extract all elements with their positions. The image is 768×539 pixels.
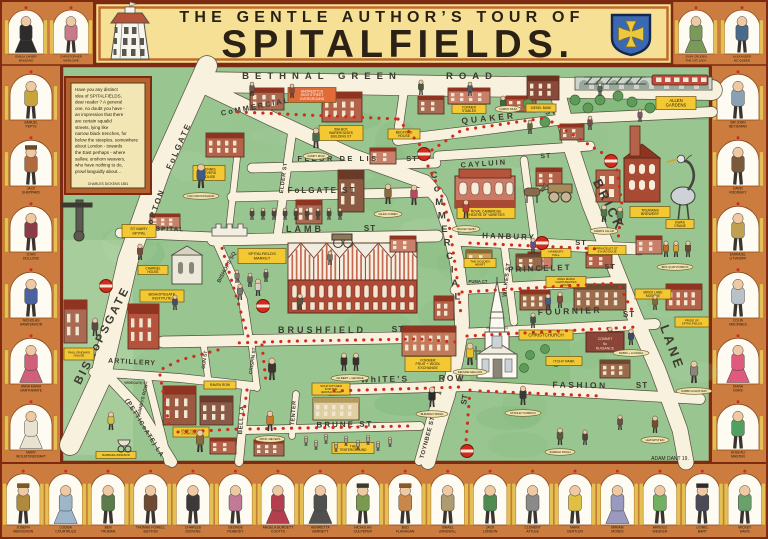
svg-text:MACINNES: MACINNES — [729, 322, 747, 326]
svg-text:GARTHWAITE: GARTHWAITE — [20, 388, 43, 392]
svg-text:FLANAGAN: FLANAGAN — [396, 529, 415, 533]
svg-text:HOUSE: HOUSE — [398, 134, 411, 138]
svg-text:BETHNAL GREEN: BETHNAL GREEN — [242, 71, 402, 82]
svg-text:ST: ST — [459, 394, 470, 406]
svg-text:streets, lying like: streets, lying like — [75, 125, 109, 130]
svg-text:BUILDING ST: BUILDING ST — [331, 135, 352, 139]
svg-text:ST: ST — [575, 238, 587, 247]
svg-text:MC QUEEN: MC QUEEN — [734, 58, 750, 62]
svg-text:RODINSKY: RODINSKY — [729, 190, 747, 194]
svg-text:are certain squalid: are certain squalid — [75, 119, 112, 124]
svg-text:COMMIT: COMMIT — [598, 337, 613, 341]
svg-text:E: E — [441, 224, 447, 235]
svg-text:ST: ST — [392, 324, 405, 334]
svg-text:DELMAR HELLION: DELMAR HELLION — [458, 370, 482, 374]
svg-text:INSTITUTE: INSTITUTE — [152, 296, 172, 300]
svg-text:HANBURY: HANBURY — [482, 231, 536, 242]
svg-text:DORS: DORS — [733, 388, 743, 392]
svg-text:ITCHY PARK: ITCHY PARK — [553, 359, 575, 363]
svg-text:SPITALFIELDS: SPITALFIELDS — [682, 322, 703, 326]
svg-text:Have you any distinct: Have you any distinct — [75, 87, 119, 92]
svg-text:idea of SPITALFIELDS,: idea of SPITALFIELDS, — [75, 93, 122, 98]
svg-text:dear reader ? A general: dear reader ? A general — [75, 100, 122, 105]
svg-text:TENTERGROUND: TENTERGROUND — [340, 448, 368, 452]
svg-text:MARKET: MARKET — [254, 256, 271, 261]
svg-text:LAMB: LAMB — [286, 224, 324, 234]
svg-text:PUMA CT: PUMA CT — [469, 279, 488, 284]
svg-text:No: No — [603, 342, 607, 346]
svg-text:ST: ST — [604, 262, 616, 271]
svg-text:RABBI GOLDSTEIN: RABBI GOLDSTEIN — [681, 389, 706, 393]
svg-text:MERCERON: MERCERON — [13, 529, 33, 533]
svg-text:WOLSTONECRAFT: WOLSTONECRAFT — [16, 454, 46, 458]
svg-text:ADAM DANT 19.: ADAM DANT 19. — [651, 456, 689, 462]
svg-text:SPITAL: SPITAL — [156, 226, 185, 233]
svg-text:DICKENS: DICKENS — [185, 529, 201, 533]
svg-text:A: A — [451, 278, 458, 289]
svg-text:about London - towards: about London - towards — [75, 144, 123, 149]
svg-text:HOUSE: HOUSE — [74, 354, 85, 358]
svg-text:GILES COREN: GILES COREN — [378, 212, 397, 216]
svg-text:LEW EPSTEIN: LEW EPSTEIN — [646, 438, 665, 442]
svg-text:THE CAT LADY: THE CAT LADY — [685, 58, 706, 62]
svg-text:ST: ST — [364, 224, 376, 233]
svg-text:CRANE: CRANE — [674, 224, 686, 228]
svg-text:the East perhaps - where: the East perhaps - where — [75, 150, 126, 155]
svg-text:RAVEN ROW: RAVEN ROW — [210, 383, 231, 387]
svg-text:BHIMRAO SINGH: BHIMRAO SINGH — [421, 412, 444, 416]
svg-text:ATTLEE: ATTLEE — [526, 529, 539, 533]
svg-text:narrow black trenches, for: narrow black trenches, for — [75, 131, 127, 136]
svg-text:DIESEL BANK: DIESEL BANK — [531, 106, 553, 110]
svg-text:CHARLES DICKENS 1851: CHARLES DICKENS 1851 — [88, 182, 129, 186]
svg-text:ZANGWILL: ZANGWILL — [439, 529, 456, 533]
svg-text:ST: ST — [623, 310, 635, 319]
svg-text:BART: BART — [698, 529, 707, 533]
svg-text:HOUSE: HOUSE — [147, 270, 158, 274]
svg-text:MARKS CLLAR: MARKS CLLAR — [594, 229, 614, 233]
svg-text:SPITAL: SPITAL — [132, 231, 146, 236]
svg-text:BETJEMAN: BETJEMAN — [729, 124, 747, 128]
svg-text:GERTLER: GERTLER — [567, 529, 584, 533]
svg-text:CAMPY MUIZ: CAMPY MUIZ — [307, 154, 325, 158]
svg-text:I: I — [451, 265, 454, 276]
svg-text:COURTAULD: COURTAULD — [55, 529, 76, 533]
svg-text:SURESH SINGH: SURESH SINGH — [549, 450, 570, 454]
svg-text:who have nothing to do,: who have nothing to do, — [75, 163, 123, 168]
svg-text:JEWISH POOR: JEWISH POOR — [321, 390, 341, 394]
svg-text:OVERGROUND: OVERGROUND — [300, 97, 325, 101]
svg-text:DAVIS: DAVIS — [740, 529, 751, 533]
svg-text:THEATRE OF VARIETIES: THEATRE OF VARIETIES — [467, 213, 504, 217]
svg-text:CAMMY MUIZ: CAMMY MUIZ — [499, 107, 517, 111]
svg-text:PROF. MEYERS: PROF. MEYERS — [260, 437, 281, 441]
svg-text:BREWERY: BREWERY — [641, 212, 660, 216]
svg-text:COUTTS: COUTTS — [271, 529, 286, 533]
svg-text:EXCHANGE: EXCHANGE — [418, 366, 438, 370]
svg-text:HAWKSMOOR: HAWKSMOOR — [20, 322, 43, 326]
svg-text:FoLGATE ST: FoLGATE ST — [288, 186, 357, 195]
svg-text:SYNAGOGUE: SYNAGOGUE — [597, 250, 616, 254]
svg-text:ST: ST — [406, 154, 418, 163]
svg-text:FASHION: FASHION — [552, 380, 607, 391]
svg-text:ST: ST — [636, 381, 648, 390]
svg-text:BARNETT: BARNETT — [312, 529, 328, 533]
svg-text:PEPYS: PEPYS — [26, 124, 38, 128]
svg-text:GILBERT + GEORGE: GILBERT + GEORGE — [336, 376, 363, 380]
svg-text:R: R — [444, 238, 451, 249]
svg-text:MARLOWE: MARLOWE — [63, 58, 79, 62]
svg-text:one, no doubt you have -: one, no doubt you have - — [75, 106, 125, 111]
svg-text:STABLES: STABLES — [462, 109, 476, 113]
svg-text:an impression that there: an impression that there — [75, 112, 124, 117]
svg-text:NUISANCE: NUISANCE — [596, 347, 615, 351]
svg-text:sallow, unshorn weavers,: sallow, unshorn weavers, — [75, 156, 125, 161]
svg-text:M: M — [435, 197, 443, 208]
svg-text:BRS QUATVN BROS: BRS QUATVN BROS — [662, 265, 689, 269]
svg-text:WESKER: WESKER — [653, 529, 668, 533]
svg-text:SPITALFIELDS.: SPITALFIELDS. — [221, 23, 574, 66]
svg-text:BUXTON: BUXTON — [144, 529, 159, 533]
svg-text:GARDENS: GARDENS — [666, 103, 687, 108]
svg-text:LITVINOFF: LITVINOFF — [730, 256, 747, 260]
svg-text:LONDON: LONDON — [483, 529, 498, 533]
svg-text:ROBIN + LUCINDA: ROBIN + LUCINDA — [619, 351, 643, 355]
svg-text:MOSES: MOSES — [611, 529, 624, 533]
svg-text:ST: ST — [540, 153, 551, 161]
svg-text:M: M — [438, 211, 446, 222]
svg-text:below the steeples, somewhere: below the steeples, somewhere — [75, 137, 139, 142]
svg-text:TRUMAN: TRUMAN — [101, 529, 116, 533]
svg-text:DAN CRUICKSHANK: DAN CRUICKSHANK — [187, 194, 214, 198]
svg-text:TRACEY EMIN: TRACEY EMIN — [456, 227, 475, 231]
svg-text:CULPEPER: CULPEPER — [354, 529, 373, 533]
svg-text:SHEPPARD: SHEPPARD — [22, 190, 41, 194]
svg-text:DOLLOND: DOLLOND — [23, 256, 40, 260]
svg-text:C: C — [431, 170, 438, 181]
svg-text:BARBARA WINDSOR: BARBARA WINDSOR — [102, 453, 130, 457]
svg-text:BASSANO: BASSANO — [19, 58, 34, 62]
svg-text:STANLEY KUBRICK: STANLEY KUBRICK — [510, 411, 536, 415]
svg-text:prowl languidly about...: prowl languidly about... — [75, 169, 121, 174]
svg-text:PEABODY: PEABODY — [227, 529, 244, 533]
svg-text:HALL: HALL — [552, 253, 560, 257]
svg-text:MASTER: MASTER — [731, 454, 745, 458]
svg-text:HEART: HEART — [475, 263, 485, 267]
svg-text:BRUSHFIELD: BRUSHFIELD — [278, 325, 366, 335]
svg-text:ROAD: ROAD — [446, 71, 498, 82]
